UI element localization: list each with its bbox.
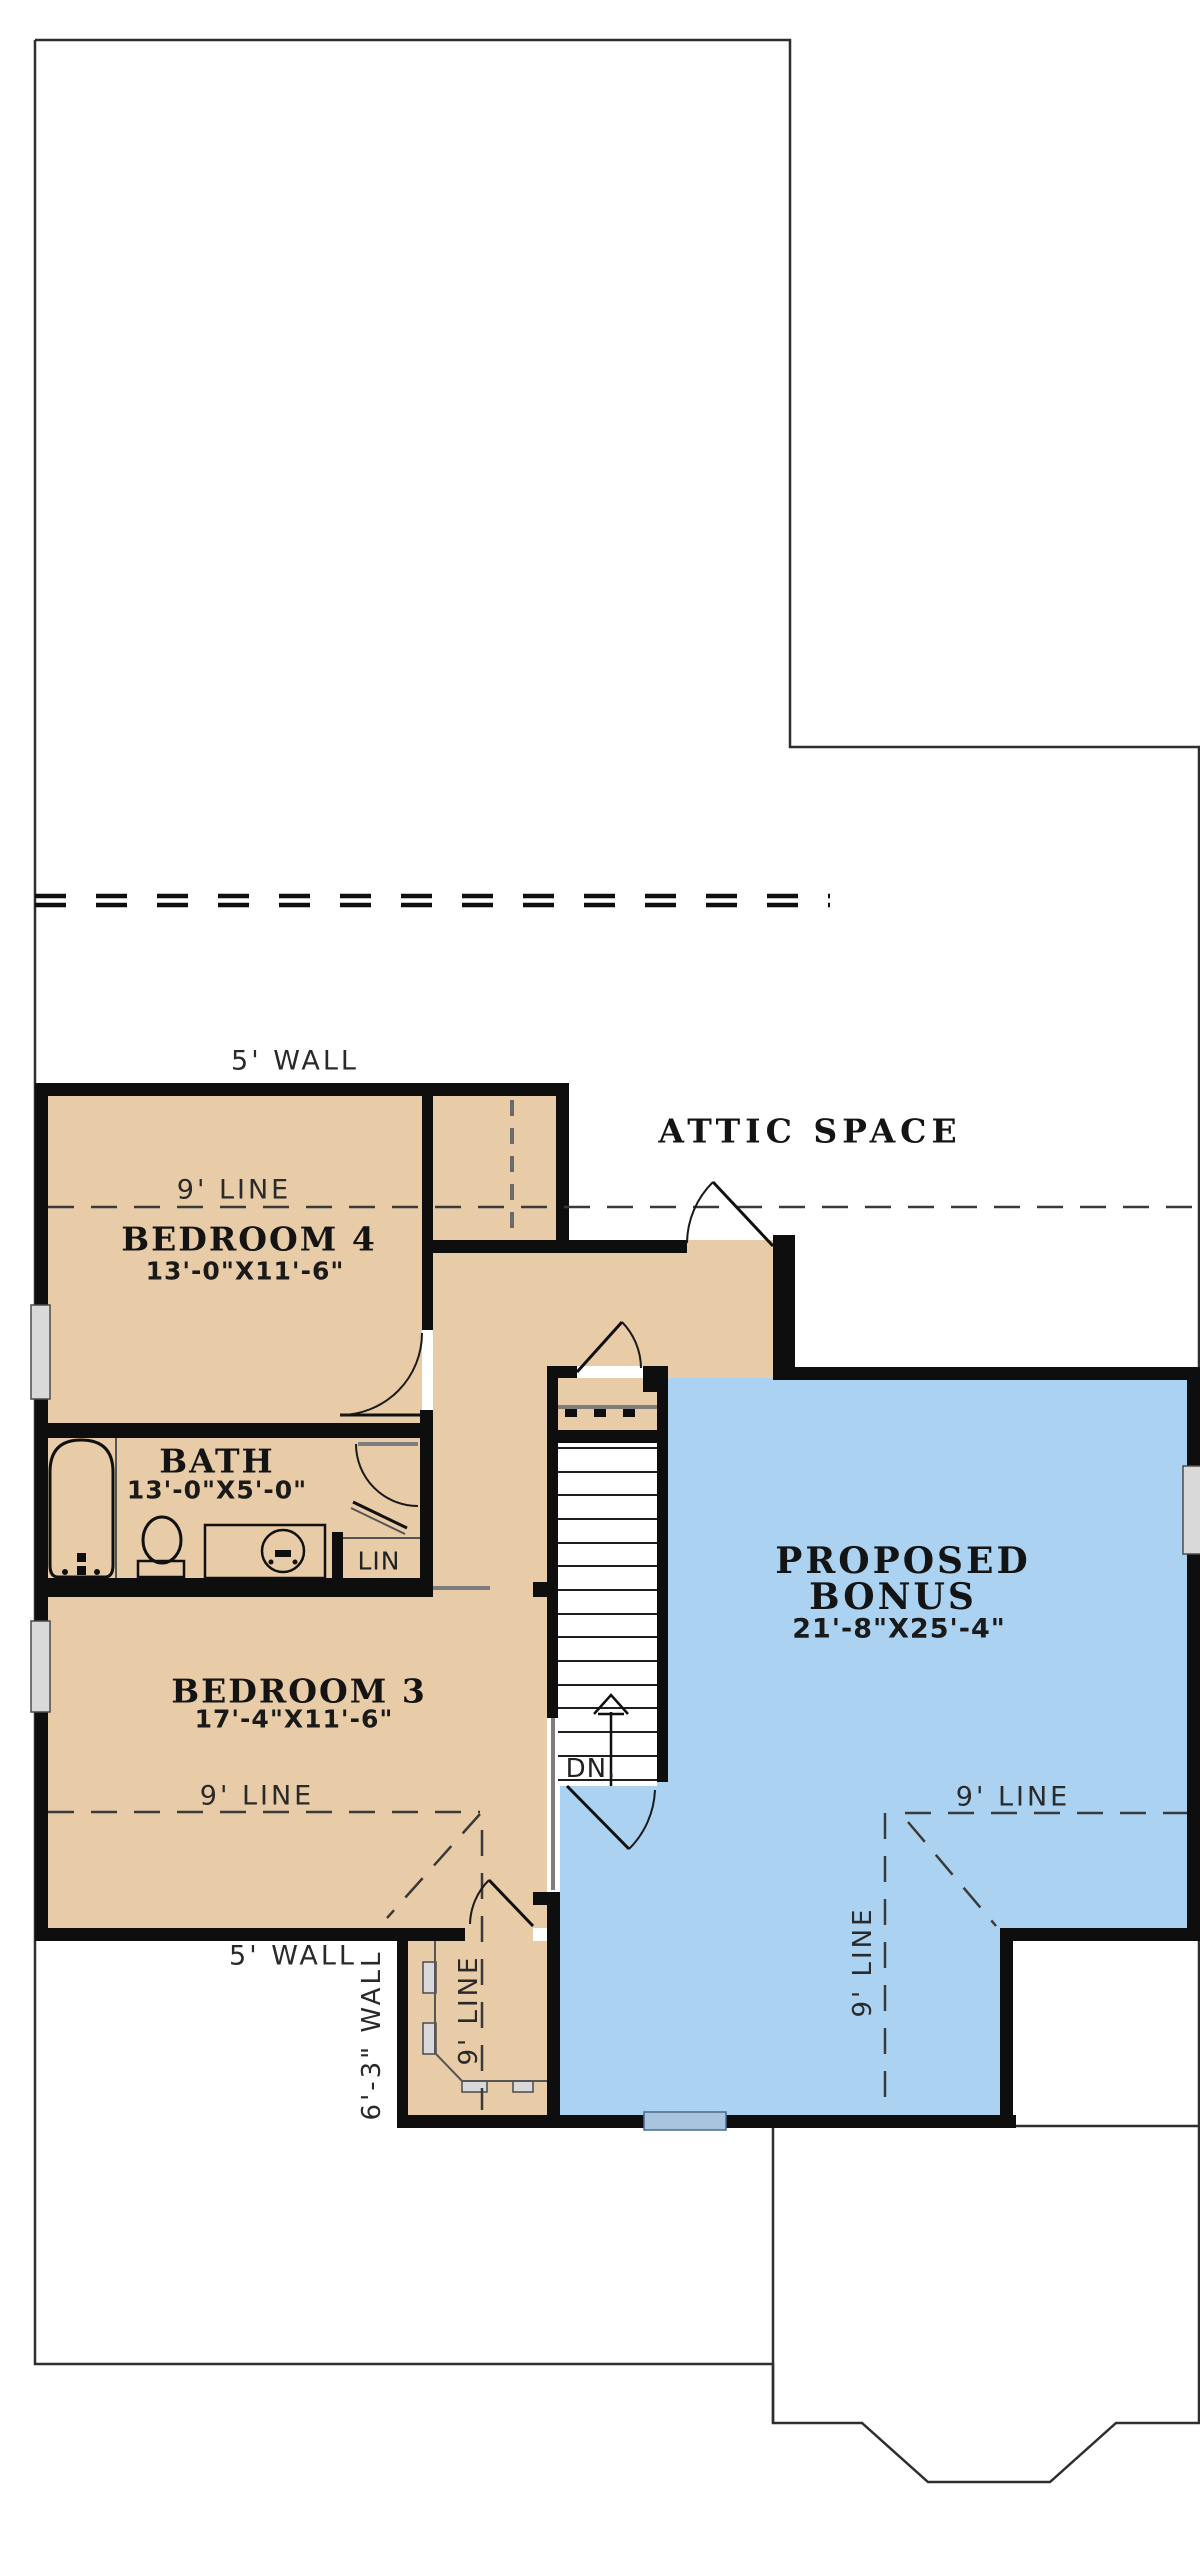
- label-5ft-wall-bottom: 5' WALL: [229, 1941, 357, 1972]
- attic-door-opening-fill: [687, 1240, 773, 1253]
- label-bonus-dims: 21'-8"X25'-4": [792, 1614, 1006, 1645]
- hall-upper-fill: [433, 1253, 773, 1366]
- vestibule-right-wall: [547, 1892, 560, 2128]
- lin-left-wall: [332, 1532, 343, 1597]
- window: [644, 2112, 726, 2130]
- attic-wall-stub: [773, 1235, 795, 1380]
- hall-wall-stub: [533, 1582, 548, 1597]
- attic-door: [687, 1182, 773, 1246]
- bedroom3-fill: [48, 1597, 547, 1928]
- vestibule-left-wall: [397, 1928, 408, 2128]
- closet-right-wall: [556, 1083, 569, 1253]
- bonus-step-wall-v: [1000, 1928, 1013, 2128]
- label-dn: DN.: [566, 1754, 617, 1784]
- label-5ft-wall-top: 5' WALL: [231, 1046, 359, 1077]
- label-bonus-line2: BONUS: [809, 1576, 977, 1618]
- stair-top-wall-left: [547, 1366, 577, 1378]
- label-bath-dims: 13'-0"X5'-0": [127, 1476, 307, 1505]
- bedroom4-upper-fill: [48, 1096, 556, 1240]
- label-attic-space: ATTIC SPACE: [658, 1112, 961, 1151]
- exterior-wall-top: [35, 1083, 567, 1096]
- window: [31, 1621, 50, 1712]
- bonus-top-wall: [795, 1367, 1200, 1380]
- bedroom3-bottom-wall: [35, 1928, 465, 1941]
- hall-lower-fill: [433, 1366, 547, 1597]
- floor-plan: 5' WALL ATTIC SPACE 9' LINE BEDROOM 4 13…: [0, 0, 1200, 2553]
- ridge-dashed-line: [35, 896, 830, 905]
- label-9ft-line-bonus: 9' LINE: [956, 1782, 1070, 1813]
- window: [1183, 1466, 1200, 1554]
- stair-door-jamb: [643, 1366, 658, 1392]
- label-6ft3-wall: 6'-3" WALL: [357, 1950, 387, 2121]
- label-9ft-line-bedroom3: 9' LINE: [200, 1781, 314, 1812]
- label-9ft-line-attic: 9' LINE: [177, 1175, 291, 1206]
- label-lin: LIN: [357, 1547, 400, 1576]
- bath-top-wall: [35, 1423, 420, 1438]
- bedroom3-door-opening-fill: [465, 1928, 533, 1941]
- bath-bottom-wall: [35, 1578, 433, 1597]
- hall-strip-fill: [657, 1366, 773, 1378]
- label-bedroom3-dims: 17'-4"X11'-6": [195, 1705, 394, 1734]
- window: [31, 1305, 50, 1399]
- window: [513, 2081, 533, 2092]
- exterior-wall-left: [35, 1083, 48, 1941]
- hall-left-wall: [420, 1443, 433, 1597]
- stair-right-wall: [657, 1366, 668, 1782]
- stair-left-wall: [547, 1366, 558, 1718]
- bonus-right-wall: [1187, 1367, 1200, 1941]
- label-9ft-line-bonus-vertical: 9' LINE: [848, 1907, 878, 2018]
- bedroom4-right-wall: [422, 1096, 433, 1330]
- label-bedroom4-dims: 13'-0"X11'-6": [146, 1257, 345, 1286]
- label-9ft-line-vestibule: 9' LINE: [454, 1955, 484, 2066]
- label-bedroom4: BEDROOM 4: [121, 1220, 377, 1259]
- stair-inner-wall: [558, 1430, 657, 1443]
- bonus-step-wall-h: [1005, 1928, 1200, 1941]
- hall-top-wall: [422, 1240, 687, 1253]
